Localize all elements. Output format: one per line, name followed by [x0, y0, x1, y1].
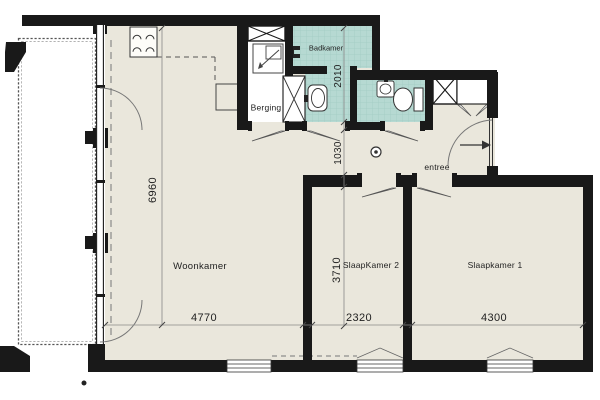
room-label-berging: Berging	[251, 103, 282, 113]
wall-segment	[425, 74, 433, 122]
door-jamb	[380, 121, 385, 131]
toilet-icon	[394, 88, 424, 111]
door-jamb	[412, 173, 417, 187]
mixer-part	[293, 46, 300, 50]
sink-tap	[304, 95, 308, 102]
window	[227, 360, 271, 372]
dim-slaapkamer1-width: 4300	[481, 312, 507, 324]
room-label-woonkamer: Woonkamer	[173, 261, 227, 272]
wall-segment	[533, 360, 593, 372]
toilet-bowl	[394, 88, 413, 111]
facade-tick	[96, 294, 105, 297]
facade-mullion-stub	[85, 236, 93, 249]
wall-segment	[293, 66, 327, 74]
smoke-detector-icon	[371, 147, 381, 157]
wall-segment	[237, 25, 248, 130]
mixer-part	[293, 54, 300, 58]
closet-box	[457, 76, 490, 104]
shaft-badkamer	[283, 76, 305, 122]
neighbour-wall-piece	[0, 346, 30, 372]
wall-segment	[88, 344, 105, 362]
wall-segment	[88, 360, 227, 372]
wall-segment	[403, 360, 487, 372]
washer-unit-icon	[253, 44, 283, 73]
door-jamb	[345, 121, 350, 131]
shaft-entree	[433, 76, 457, 104]
door-jamb	[248, 121, 252, 131]
facade-mullion-stub	[85, 131, 93, 144]
dim-woonkamer-depth: 6960	[147, 177, 159, 203]
facade-tick	[96, 180, 105, 183]
floorplan-svg: Woonkamer Badkamer Berging entree SlaapK…	[0, 0, 600, 400]
wall-segment	[303, 175, 312, 360]
shaft-berging-top	[248, 26, 285, 41]
wall-segment	[403, 175, 412, 360]
door-jamb	[420, 121, 425, 131]
window	[357, 360, 403, 372]
toilet-tank	[414, 88, 423, 111]
balcony	[19, 39, 96, 345]
room-label-slaapkamer1: Slaapkamer 1	[468, 260, 523, 270]
corner-sink-body	[377, 81, 394, 97]
dim-slaapkamer2-width: 2320	[346, 312, 372, 324]
room-label-slaapkamer2: SlaapKamer 2	[343, 260, 399, 270]
glass-facade	[96, 25, 105, 344]
wall-segment	[487, 72, 498, 118]
detector-dot	[374, 150, 378, 154]
washer-body	[253, 44, 283, 73]
window	[487, 360, 533, 372]
wall-segment	[271, 360, 357, 372]
room-label-entree: entree	[424, 162, 449, 172]
dim-hal-depth: 1030	[333, 141, 344, 165]
stove-icon	[130, 27, 157, 57]
door-jamb	[357, 173, 362, 187]
wall-segment	[22, 15, 380, 26]
room-label-badkamer: Badkamer	[309, 44, 344, 53]
dim-badkamer-depth: 2010	[333, 64, 344, 88]
wall-segment	[452, 175, 593, 187]
door-jamb	[452, 173, 457, 187]
floorplan-canvas: Woonkamer Badkamer Berging entree SlaapK…	[0, 0, 600, 400]
stove-body	[130, 27, 157, 57]
door-jamb	[285, 121, 289, 131]
exterior-marker-dot	[82, 381, 87, 386]
door-jamb	[302, 121, 307, 131]
balcony-railing-outer	[19, 39, 96, 345]
door-jamb	[396, 173, 401, 187]
wall-segment	[350, 66, 357, 126]
wall-segment	[285, 25, 293, 76]
dim-woonkamer-width: 4770	[191, 312, 217, 324]
corner-sink-icon	[377, 78, 394, 97]
wall-segment	[583, 175, 593, 372]
dim-slaapkamer2-depth: 3710	[331, 257, 343, 283]
